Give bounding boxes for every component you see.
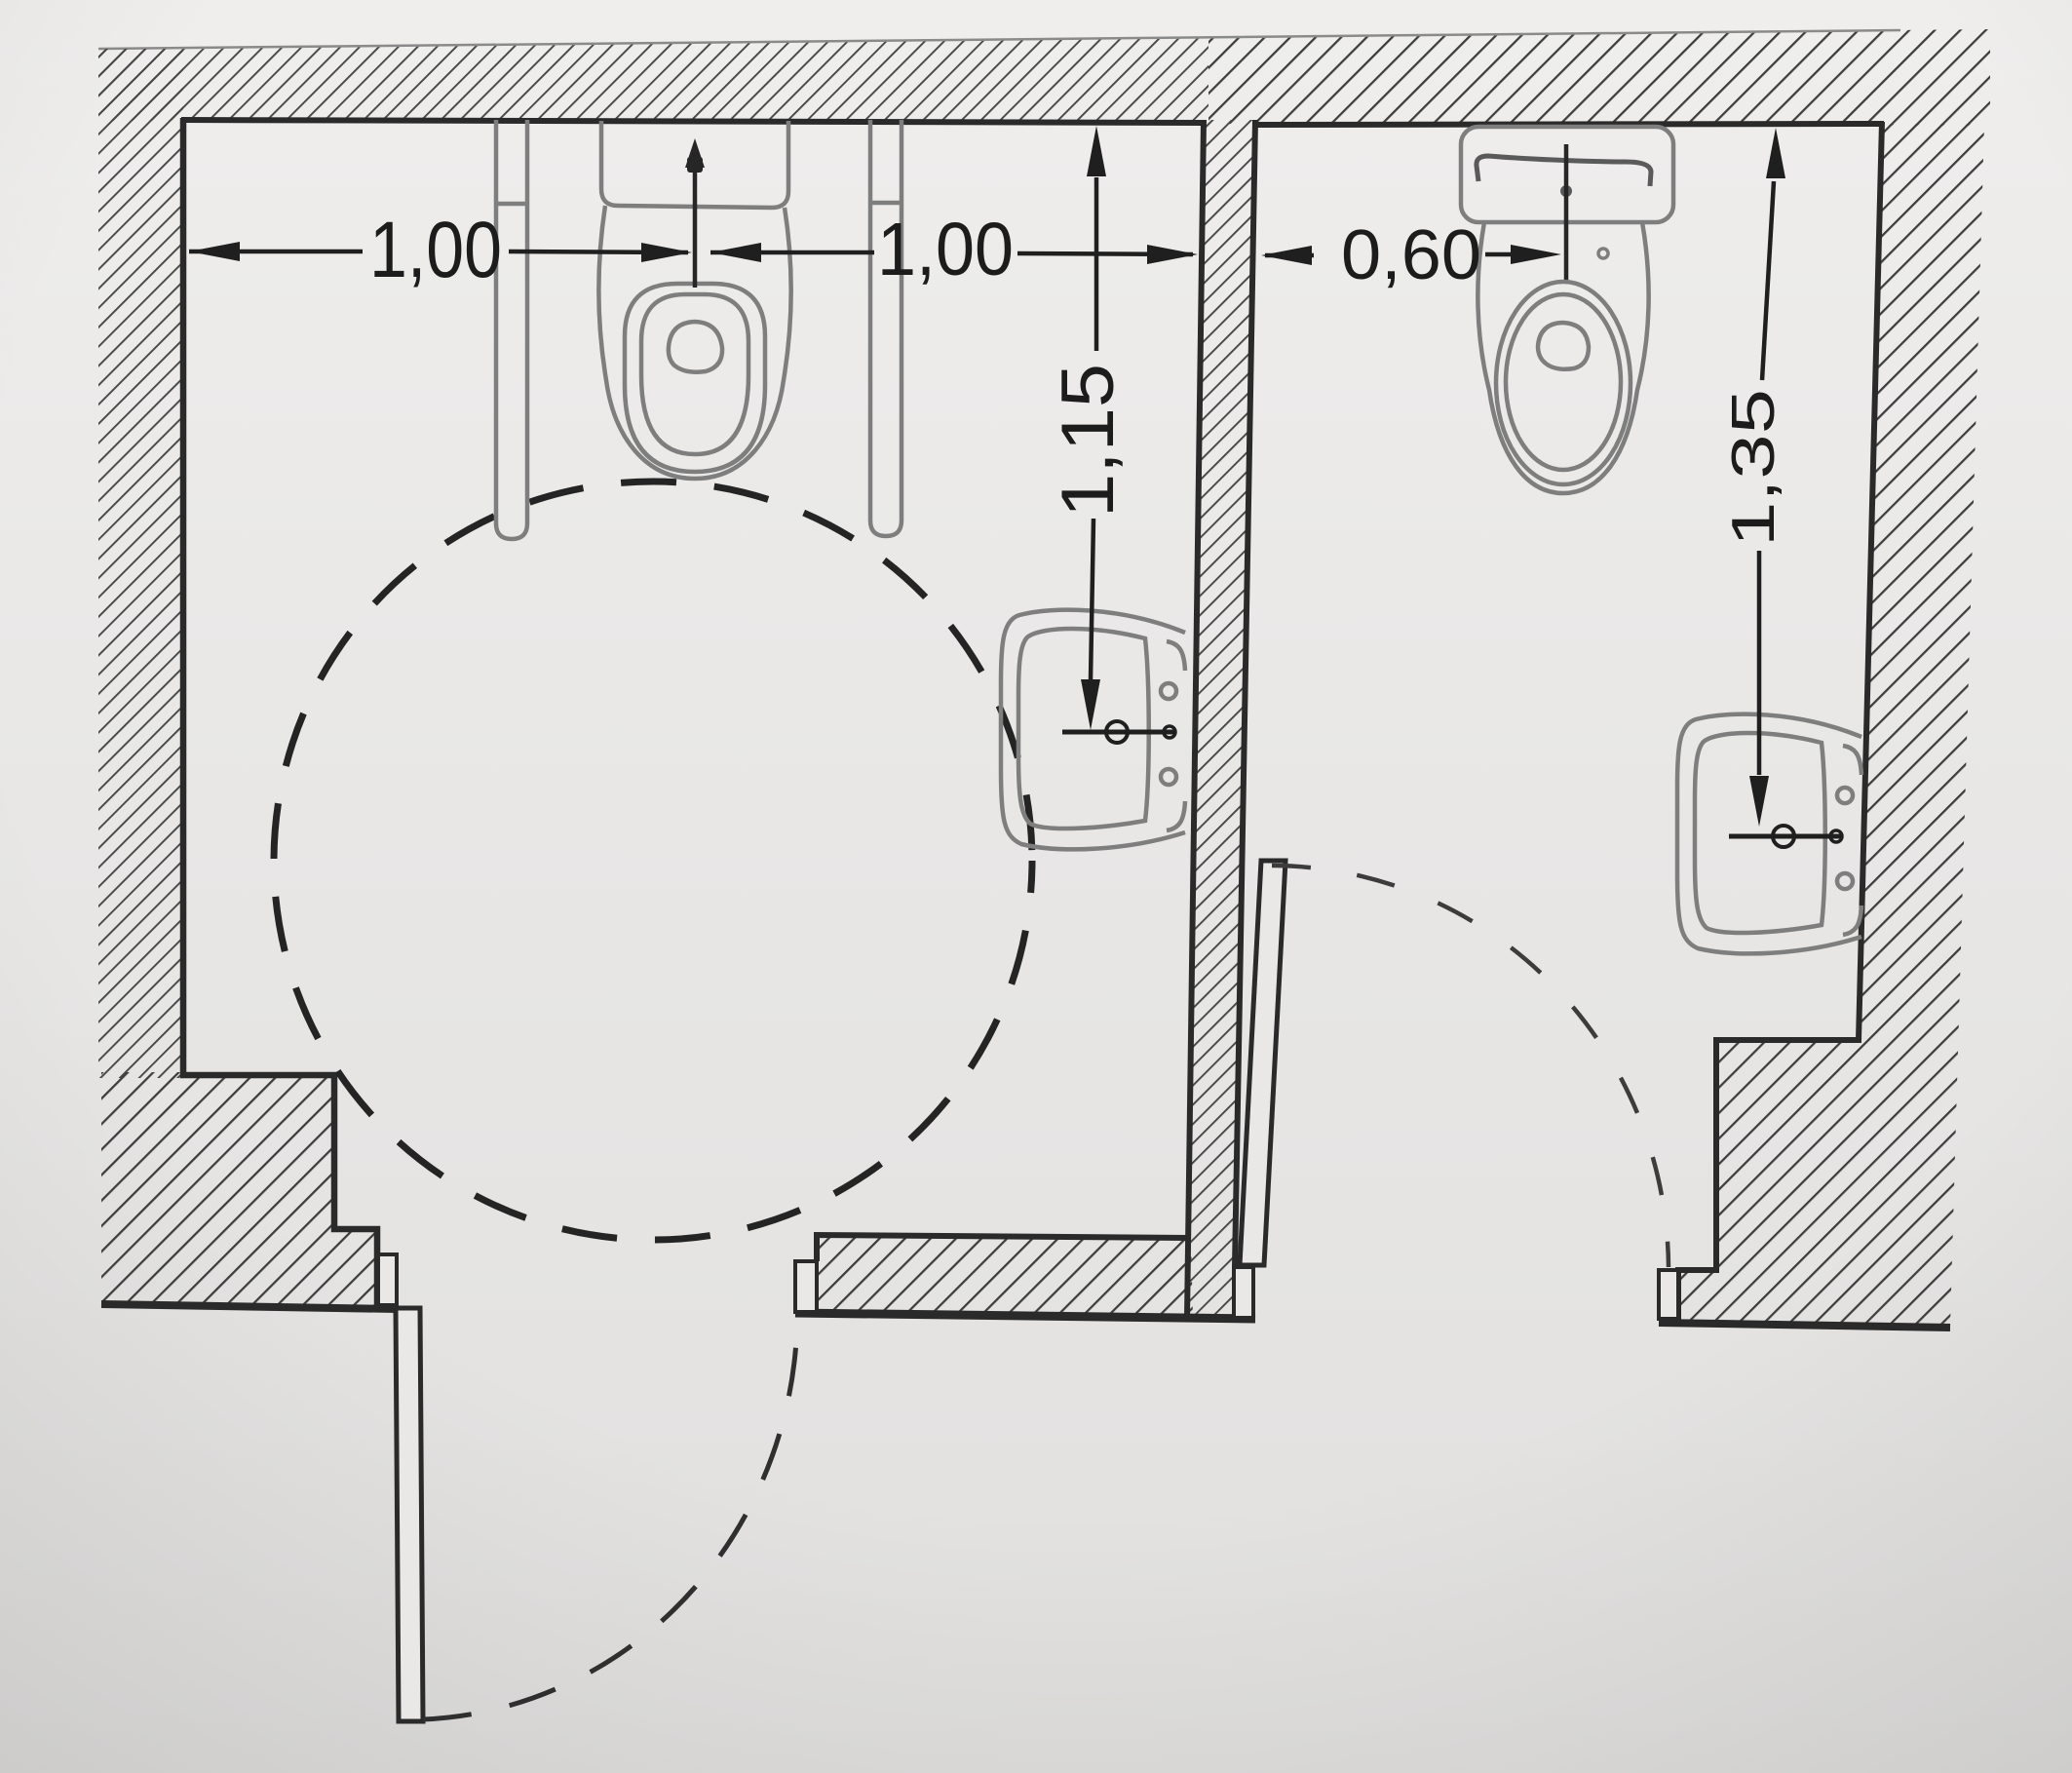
svg-text:1,35: 1,35 <box>1720 389 1787 547</box>
svg-text:0,60: 0,60 <box>1341 216 1481 294</box>
svg-text:1,00: 1,00 <box>369 206 502 294</box>
svg-text:1,15: 1,15 <box>1047 364 1130 518</box>
svg-text:1,00: 1,00 <box>877 208 1014 291</box>
